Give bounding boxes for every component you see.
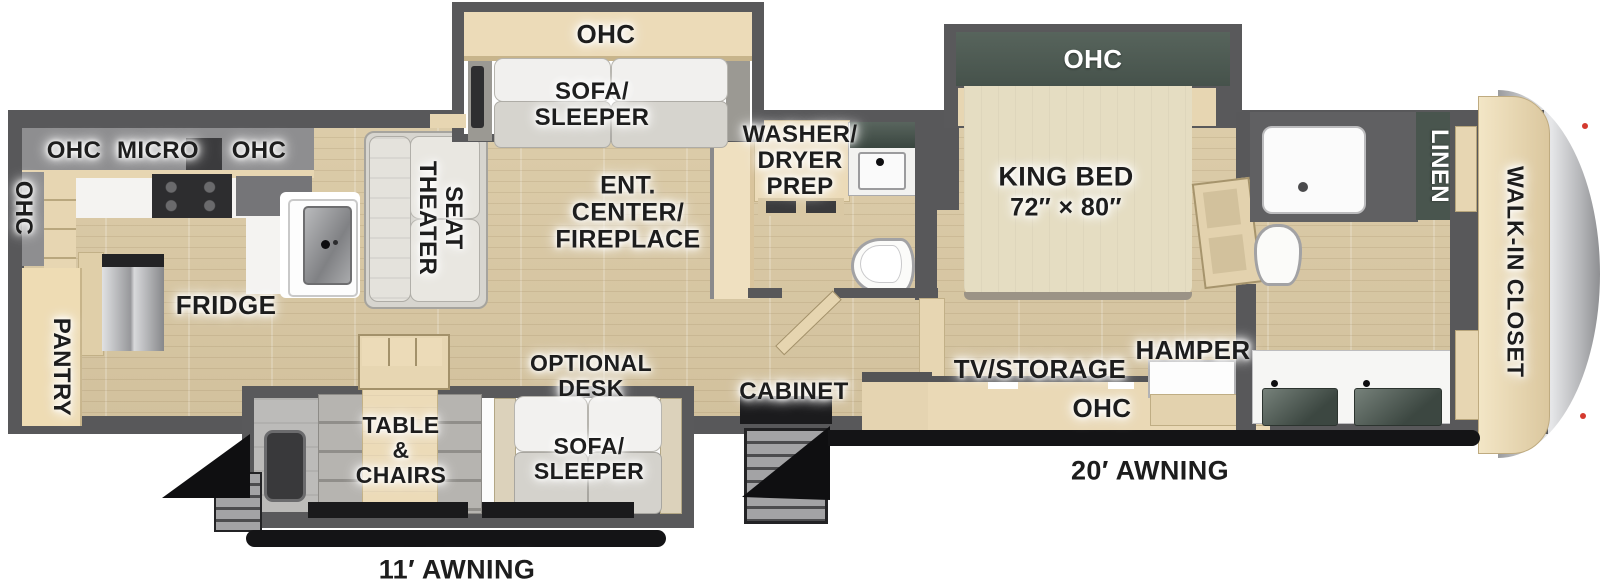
label-linen: LINEN <box>1426 129 1452 203</box>
label-hamper: HAMPER <box>1135 336 1250 364</box>
label-kitchen-ohc-right: OHC <box>232 138 287 164</box>
label-washer-dryer-prep: WASHER/ DRYER PREP <box>743 122 858 200</box>
label-side-ohc: OHC <box>10 181 36 236</box>
mid-bath-wall <box>834 288 938 298</box>
stove-cooktop <box>152 174 232 218</box>
nightstand <box>1188 88 1216 126</box>
mid-bath-faucet-icon <box>876 158 884 166</box>
marker-light <box>1580 413 1586 419</box>
label-optional-desk: OPTIONAL DESK <box>530 351 652 401</box>
label-walk-in-closet: WALK-IN CLOSET <box>1503 166 1528 378</box>
label-sofa-sleeper-bottom: SOFA/ SLEEPER <box>534 434 644 484</box>
closet-door <box>1455 126 1477 212</box>
label-microwave: MICRO <box>117 138 199 164</box>
mid-bath-toilet-seat <box>860 245 902 283</box>
vanity-faucet-icon <box>1363 380 1370 387</box>
vanity-sink <box>1262 388 1338 426</box>
mid-bath-wall <box>915 118 937 300</box>
label-ent-center-fireplace: ENT. CENTER/ FIREPLACE <box>555 173 700 254</box>
label-awning-20: 20′ AWNING <box>1071 456 1229 485</box>
bedroom-dresser <box>919 298 945 380</box>
bedroom-corner-cabinet <box>862 372 932 434</box>
mid-bath-wall <box>748 288 782 298</box>
front-bath-toilet <box>1254 224 1302 286</box>
slideout-window <box>264 430 306 502</box>
bed-frame-foot <box>964 292 1192 300</box>
label-bed-ohc: OHC <box>1064 45 1123 73</box>
label-king-bed: KING BED <box>998 162 1133 191</box>
label-cabinet: CABINET <box>739 379 848 405</box>
theater-seat-back <box>369 136 411 302</box>
rear-entry-door-swing <box>162 434 250 498</box>
label-ohc-sofa-slide: OHC <box>577 20 636 48</box>
kitchen-faucet-icon <box>321 240 330 249</box>
closet-door <box>1455 330 1479 420</box>
marker-light <box>1582 123 1588 129</box>
sofa-side-table <box>471 66 484 128</box>
awning-11ft-bar <box>246 530 666 547</box>
label-awning-11: 11′ AWNING <box>379 555 536 584</box>
shower-drain-icon <box>1298 182 1308 192</box>
bath-drawers <box>758 198 844 216</box>
sofa-armrest <box>494 398 516 514</box>
vanity-sink <box>1354 388 1442 426</box>
label-table-chairs: TABLE & CHAIRS <box>356 413 447 487</box>
hutch-shelves <box>362 338 442 366</box>
end-table <box>430 114 466 128</box>
vanity-faucet-icon <box>1271 380 1278 387</box>
label-king-bed-size: 72″ × 80″ <box>1010 195 1122 222</box>
label-bedroom-ohc: OHC <box>1073 394 1132 422</box>
label-fridge: FRIDGE <box>176 291 277 319</box>
label-sofa-sleeper-top: SOFA/ SLEEPER <box>535 79 650 131</box>
label-kitchen-ohc-left: OHC <box>47 138 102 164</box>
sofa-armrest <box>660 398 682 514</box>
label-theater-seat: THEATER SEAT <box>414 161 466 275</box>
refrigerator <box>102 267 164 351</box>
label-tv-storage: TV/STORAGE <box>954 355 1127 383</box>
awning-20ft-bar <box>828 430 1480 446</box>
hamper <box>1148 360 1236 398</box>
mid-bath-shelf <box>850 122 920 148</box>
rv-floorplan: OHC SOFA/ SLEEPER OHC MICRO OHC OHC THEA… <box>0 0 1600 584</box>
shower <box>1262 126 1366 214</box>
mid-bath-wall <box>937 118 959 210</box>
slideout-trim-bar <box>482 502 634 518</box>
label-pantry: PANTRY <box>48 318 74 416</box>
slideout-trim-bar <box>308 502 468 518</box>
fridge-top-trim <box>102 254 164 267</box>
